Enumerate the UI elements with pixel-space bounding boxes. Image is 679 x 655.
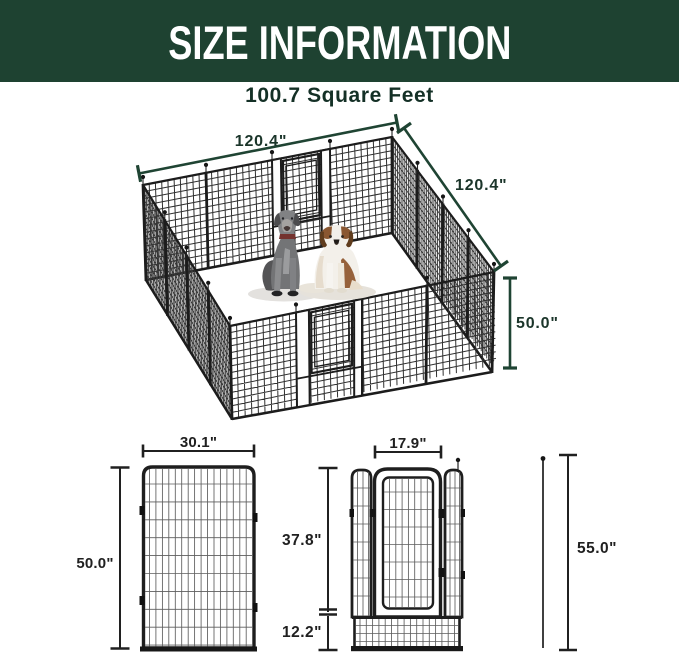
svg-text:50.0": 50.0" — [76, 555, 113, 572]
svg-text:50.0": 50.0" — [516, 315, 559, 332]
svg-text:120.4": 120.4" — [235, 133, 287, 150]
svg-text:55.0": 55.0" — [577, 540, 617, 557]
svg-text:37.8": 37.8" — [282, 532, 322, 549]
svg-text:12.2": 12.2" — [282, 624, 322, 641]
svg-text:17.9": 17.9" — [389, 435, 426, 452]
svg-text:120.4": 120.4" — [455, 177, 507, 194]
svg-text:30.1": 30.1" — [180, 434, 217, 451]
